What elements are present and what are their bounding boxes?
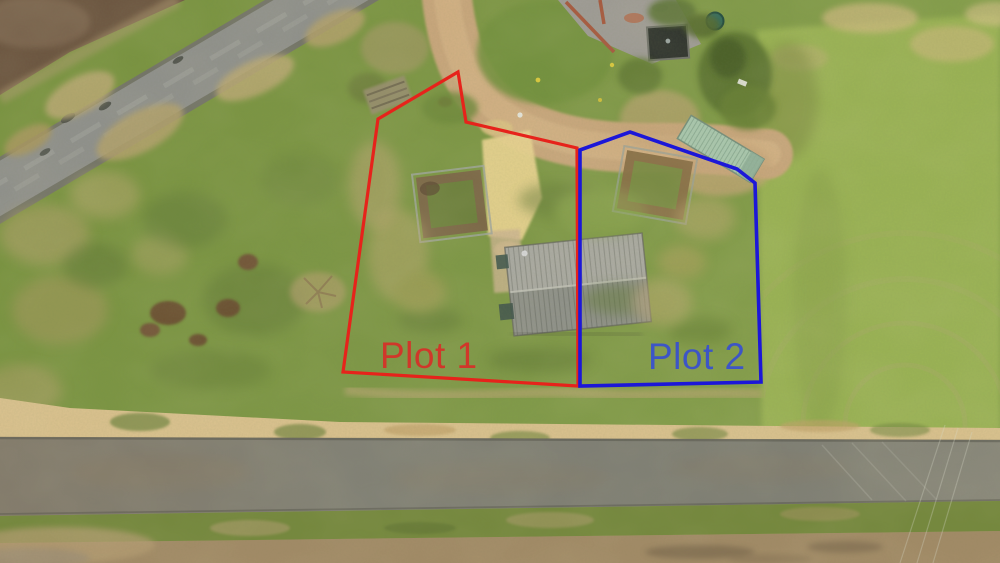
plot1-label: Plot 1 [380,335,478,376]
photo-texture [0,0,1000,563]
aerial-photo: Plot 1 Plot 2 [0,0,1000,563]
plot2-label: Plot 2 [648,336,746,377]
aerial-photo-stage: Plot 1 Plot 2 [0,0,1000,563]
